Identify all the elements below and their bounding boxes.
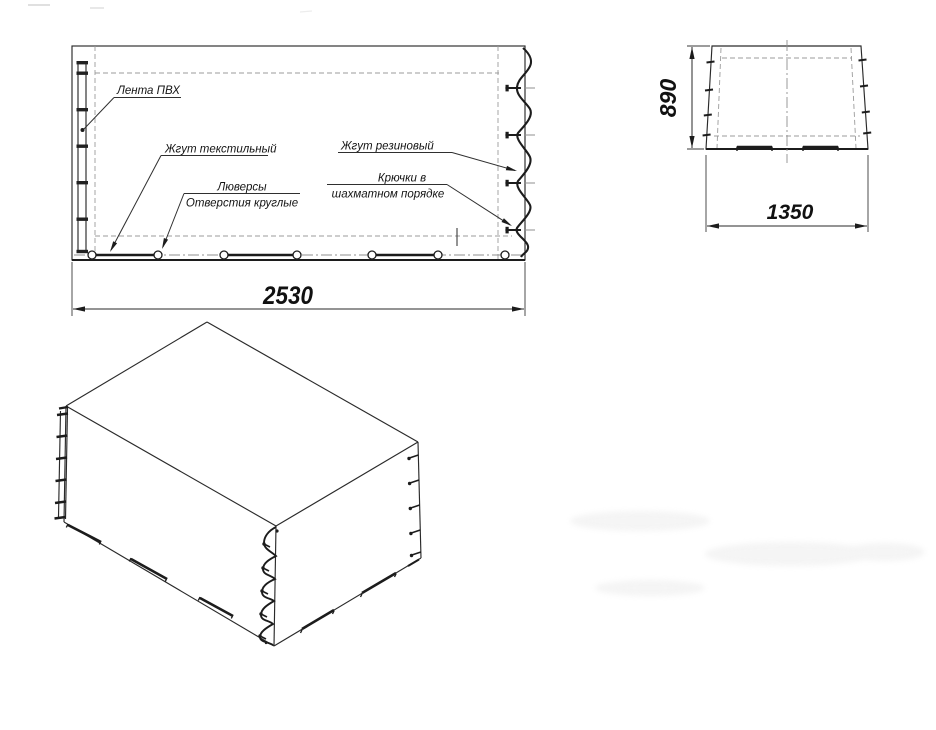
iso-bottom-cords	[66, 524, 419, 633]
cord-stub	[408, 560, 419, 567]
dimension-value-height: 890	[655, 79, 681, 118]
label-rubber-cord: Жгут резиновый	[340, 141, 434, 153]
leader-dot	[81, 128, 85, 132]
tape-collar	[55, 502, 66, 504]
dimension-arrowhead	[689, 47, 694, 59]
hook	[860, 86, 868, 87]
hook	[707, 62, 715, 63]
hook	[506, 85, 522, 92]
textile-cord	[362, 573, 396, 593]
hook-head	[408, 482, 411, 485]
watermark-blobs	[570, 511, 925, 596]
hook-head	[407, 457, 410, 460]
tape-collar	[59, 407, 68, 409]
dimension-arrowhead	[512, 306, 524, 311]
pvc-tape-strip	[77, 61, 89, 253]
hook	[703, 135, 711, 136]
callout-hooks: Крючки в шахматном порядке	[327, 173, 512, 227]
textile-cord	[131, 559, 167, 579]
vertical-edge	[418, 442, 421, 558]
rubber-cord-wave	[517, 48, 531, 257]
tape-collar	[77, 108, 89, 111]
dimension-length-2530: 2530	[72, 262, 525, 316]
hook	[863, 133, 871, 134]
dimension-value-length: 2530	[262, 282, 313, 310]
hook-stem	[411, 530, 420, 533]
top-edge	[207, 322, 418, 442]
iso-box-edges	[64, 322, 421, 646]
leader-arrowhead	[110, 241, 117, 252]
grommet	[88, 251, 96, 259]
rubber-cord-assembly	[505, 48, 537, 257]
hook	[704, 115, 712, 116]
dimension-width-1350: 1350	[706, 155, 868, 232]
cord-end-dot	[265, 642, 267, 644]
end-view: 890 1350	[655, 40, 871, 232]
label-textile-cord: Жгут текстильный	[164, 144, 277, 156]
watermark	[595, 580, 705, 596]
grommet	[293, 251, 301, 259]
seam-line-right	[851, 48, 856, 148]
hook-stem	[411, 505, 420, 508]
label-hooks-line1: Крючки в	[378, 173, 426, 185]
watermark	[845, 543, 925, 561]
isometric-view	[55, 322, 422, 646]
hook-head	[409, 507, 412, 510]
hook-stem	[409, 455, 418, 458]
textile-cord	[302, 610, 334, 629]
cord-end-tick	[198, 597, 200, 600]
grommet	[154, 251, 162, 259]
cord-end-tick	[66, 524, 68, 527]
grommet	[434, 251, 442, 259]
hook-head	[506, 85, 509, 92]
drawing-page: Лента ПВХ Жгут текстильный Люверсы Отвер…	[0, 0, 936, 730]
tape-collar	[56, 458, 67, 460]
callout-rubber-cord: Жгут резиновый	[338, 141, 517, 172]
leader-line	[84, 98, 115, 130]
leader-arrowhead	[506, 166, 517, 171]
bottom-edge	[274, 558, 421, 646]
hook	[408, 480, 419, 485]
vertical-edge	[274, 526, 276, 646]
hook	[407, 455, 418, 460]
tape-collar	[55, 517, 66, 519]
hook-stem	[412, 552, 421, 555]
leader-arrowhead	[502, 218, 513, 226]
rubber-cord-wave	[260, 527, 276, 645]
hook	[275, 529, 278, 532]
textile-cord	[200, 598, 233, 616]
callout-pvc-tape: Лента ПВХ	[81, 85, 182, 132]
tape-collar	[77, 145, 89, 148]
hook-head	[410, 554, 413, 557]
callout-grommets: Люверсы Отверстия круглые	[162, 182, 300, 250]
dimension-arrowhead	[855, 223, 867, 228]
textile-cord	[68, 525, 101, 542]
label-grommets-line2: Отверстия круглые	[186, 198, 298, 210]
dimension-arrowhead	[73, 306, 85, 311]
top-edge	[276, 442, 418, 526]
tape-collar	[77, 250, 89, 253]
main-side-view: Лента ПВХ Жгут текстильный Люверсы Отвер…	[72, 46, 537, 316]
hook	[705, 90, 713, 91]
smudge-mark	[300, 11, 312, 12]
tape-collar	[57, 414, 68, 416]
hook-head	[409, 532, 412, 535]
leader-line	[452, 153, 515, 171]
top-edge	[66, 322, 207, 406]
dimension-arrowhead	[689, 136, 694, 148]
label-pvc-tape: Лента ПВХ	[116, 85, 181, 97]
tape-collar	[77, 61, 89, 64]
tape-collar	[77, 181, 89, 184]
hook	[862, 112, 870, 113]
grommet	[368, 251, 376, 259]
hook-head	[506, 132, 509, 139]
tape-collar	[56, 480, 67, 482]
dimension-height-890: 890	[655, 46, 710, 149]
end-seam-dashed-lines	[714, 40, 860, 163]
tape-collar	[77, 72, 89, 75]
hook	[409, 530, 420, 535]
grommet	[501, 251, 509, 259]
hook-head	[506, 180, 509, 187]
label-hooks-line2: шахматном порядке	[332, 189, 445, 201]
hook	[859, 60, 867, 61]
top-edge	[66, 406, 276, 526]
seam-line-left	[717, 48, 721, 148]
grommet	[220, 251, 228, 259]
label-grommets-line1: Люверсы	[216, 182, 267, 194]
hook-head	[506, 227, 509, 234]
tape-collar	[77, 218, 89, 221]
dimension-value-width: 1350	[767, 201, 814, 224]
leader-line	[447, 185, 510, 226]
hook	[410, 552, 421, 557]
hook-stem	[410, 480, 419, 483]
cover-outline	[72, 46, 525, 260]
technical-drawing-canvas: Лента ПВХ Жгут текстильный Люверсы Отвер…	[0, 0, 936, 730]
tape-collar	[57, 436, 68, 438]
hook	[409, 505, 420, 510]
grommet-row	[74, 251, 523, 259]
leader-arrowhead	[162, 238, 168, 249]
dimension-arrowhead	[707, 223, 719, 228]
watermark	[570, 511, 710, 531]
